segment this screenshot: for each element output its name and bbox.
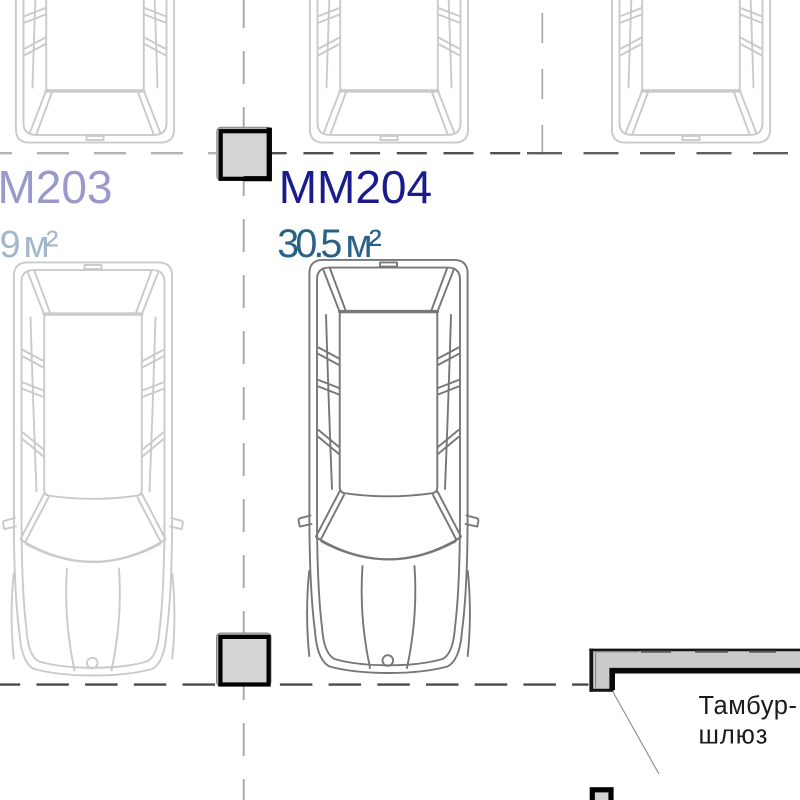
svg-text:Тамбур-: Тамбур- [699,692,798,720]
svg-text:ММ204: ММ204 [279,161,432,213]
svg-text:шлюз: шлюз [699,722,768,750]
svg-text:30.5 м²: 30.5 м² [277,222,382,266]
svg-text:М203: М203 [0,161,113,213]
svg-text:9 м²: 9 м² [0,224,59,266]
